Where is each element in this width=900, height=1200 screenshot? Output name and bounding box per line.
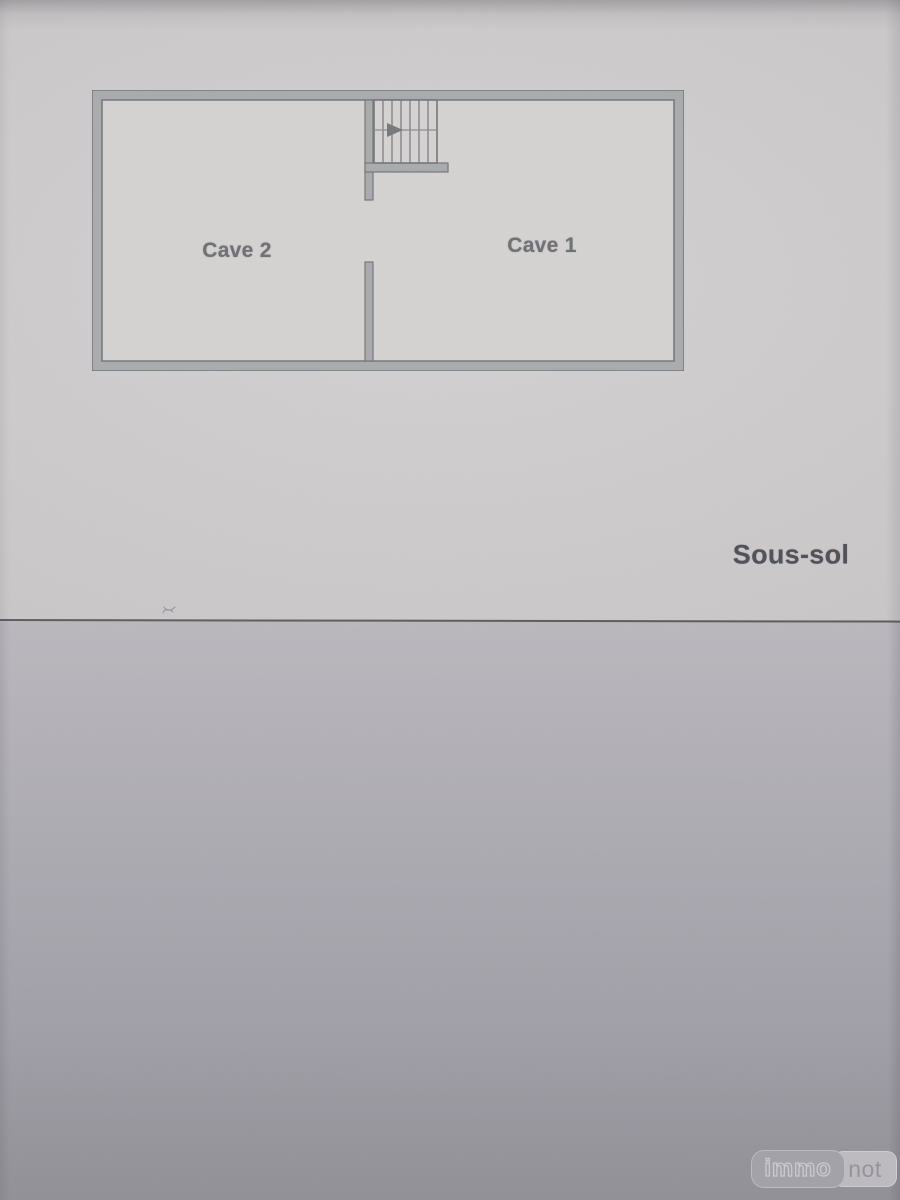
- pen-scribble-icon: [160, 603, 178, 617]
- floor-label: Sous-sol: [733, 540, 849, 571]
- watermark-immo-text: immo: [764, 1155, 831, 1183]
- watermark-logo: not immo: [751, 1150, 899, 1188]
- staircase: [374, 100, 437, 163]
- room-label-cave-1: Cave 1: [507, 234, 577, 258]
- divider-wall-upper: [365, 100, 373, 200]
- room-label-cave-2: Cave 2: [202, 239, 272, 263]
- floor-plan: Cave 2 Cave 1: [92, 90, 684, 371]
- plan-walls-svg: [92, 90, 684, 371]
- watermark-immo-segment: immo: [751, 1150, 845, 1188]
- photographed-floor-plan-page: Cave 2 Cave 1 Sous-sol not immo: [0, 0, 900, 1200]
- paper-bottom-section: [0, 621, 900, 1200]
- divider-wall-lower: [365, 262, 373, 361]
- stair-bottom-wall: [365, 163, 448, 172]
- watermark-not-text: not: [848, 1156, 881, 1183]
